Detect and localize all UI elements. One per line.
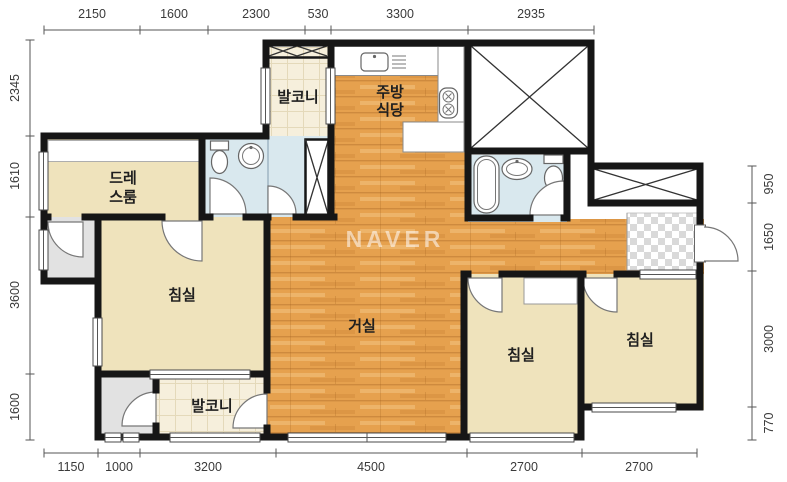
window-icon	[640, 270, 696, 279]
window-icon	[150, 370, 250, 379]
window-icon	[105, 433, 121, 442]
dim-line-top	[44, 26, 594, 35]
room-label-bedroom-left: 침실	[168, 287, 196, 304]
dimensions-right: 950 1650 3000 770	[748, 166, 777, 440]
window-icon	[470, 433, 574, 442]
room-label-balcony-bottom: 발코니	[191, 398, 232, 415]
dim-label: 950	[762, 174, 776, 195]
dimensions-bottom: 1150 1000 3200 4500 2700 2700	[44, 449, 697, 475]
duct-x-hatch-icon	[594, 169, 697, 200]
room-label-bedroom-right: 침실	[626, 332, 654, 349]
dim-label: 1610	[8, 162, 22, 190]
entrance-door-arc-icon	[704, 227, 738, 261]
dim-label: 1600	[160, 7, 188, 21]
room-label-dressroom-2: 스룸	[109, 189, 137, 206]
stove-burners-icon	[440, 88, 458, 118]
dim-label: 3200	[194, 460, 222, 474]
room-label-kitchen-2: 식당	[376, 101, 404, 119]
dim-label: 1150	[58, 460, 85, 474]
dim-line-right	[748, 166, 757, 440]
dim-label: 2700	[625, 460, 653, 474]
window-icon	[39, 230, 48, 270]
window-icon	[170, 433, 260, 442]
toilet2-icon	[544, 155, 563, 164]
window-icon	[288, 433, 446, 442]
dim-label: 3300	[386, 7, 414, 21]
room-label-bedroom-middle: 침실	[507, 347, 535, 364]
dim-label: 3600	[8, 281, 22, 309]
window-icon	[93, 318, 102, 366]
bedroom-middle-closet	[524, 278, 577, 304]
dim-label: 2150	[78, 7, 106, 21]
dim-label: 530	[308, 7, 329, 21]
dim-label: 2345	[8, 74, 22, 102]
dim-line-bottom	[44, 449, 697, 458]
dim-label: 1600	[8, 393, 22, 421]
faucet-dot-icon	[249, 146, 252, 149]
dimensions-left: 2345 1610 3600 1600	[8, 40, 35, 440]
dim-line-left	[26, 40, 35, 440]
naver-watermark: NAVER	[346, 226, 445, 252]
toilet-bowl-icon	[212, 151, 228, 174]
dim-label: 2700	[510, 460, 538, 474]
window-icon	[261, 68, 270, 124]
dim-label: 2300	[242, 7, 270, 21]
dim-label: 1650	[762, 223, 776, 251]
dim-label: 2935	[517, 7, 545, 21]
kitchen-faucet-dot-icon	[373, 55, 376, 58]
room-label-balcony-top: 발코니	[277, 89, 318, 106]
dimensions-top: 2150 1600 2300 530 3300 2935	[44, 7, 594, 35]
entrance-checker-tile	[627, 213, 697, 270]
room-label-living: 거실	[348, 318, 376, 335]
faucet2-dot-icon	[515, 160, 518, 163]
window-icon	[592, 403, 676, 412]
room-label-kitchen-1: 주방	[376, 83, 404, 101]
toilet-icon	[211, 141, 229, 150]
dim-label: 3000	[762, 325, 776, 353]
window-icon	[123, 433, 139, 442]
dim-label: 4500	[357, 460, 385, 474]
kitchen-counter-bottom	[403, 122, 464, 152]
entrance-door	[695, 225, 739, 262]
floorplan: 발코니 주방 식당 드레 스룸 침실 거실 침실 침실 발코니 NAVER 21…	[0, 0, 787, 482]
entrance-door-leaf-icon	[695, 225, 706, 262]
dim-label: 770	[762, 413, 776, 434]
dressroom-closet	[48, 141, 199, 162]
room-label-dressroom-1: 드레	[109, 170, 137, 187]
floorplan-canvas: 발코니 주방 식당 드레 스룸 침실 거실 침실 침실 발코니 NAVER 21…	[0, 0, 787, 482]
window-icon	[39, 152, 48, 210]
window-icon	[326, 68, 335, 124]
dim-label: 1000	[105, 460, 133, 474]
